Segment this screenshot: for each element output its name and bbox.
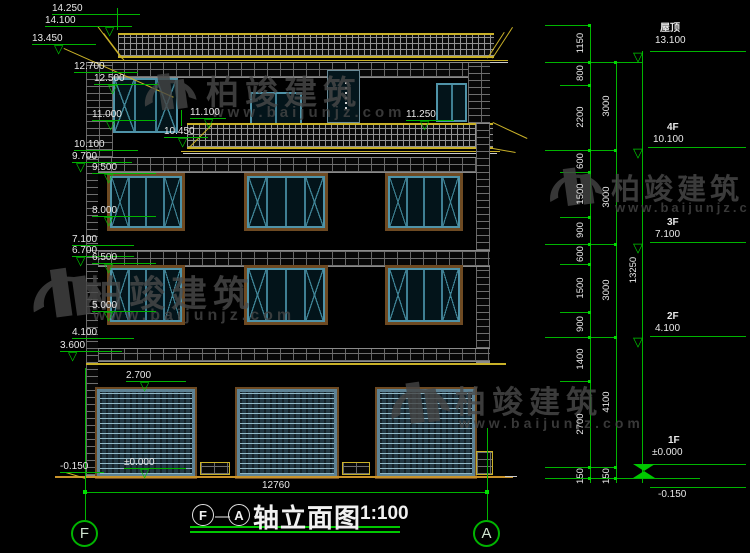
floor-marker-2f: 2F 4.100: [655, 311, 680, 335]
1f-top-brick-band: [98, 348, 490, 362]
2f-window-center: [247, 268, 325, 322]
window-pane: [155, 80, 176, 131]
watermark-url: www.baijunjz.com: [615, 200, 750, 215]
overall-width-dim: 12760: [262, 480, 290, 491]
window-pane: [423, 178, 441, 226]
window-pane: [128, 178, 146, 226]
1f-canopy-line: [86, 363, 506, 365]
2f-window-right: [388, 268, 460, 322]
window-pane: [115, 80, 134, 131]
dim-value: 3000: [601, 175, 613, 219]
floor-level-line: [650, 242, 746, 243]
level-marker: 14.250: [52, 3, 83, 14]
level-marker: 2.700▽: [126, 370, 151, 381]
dim-end-dot: [485, 490, 489, 494]
drawing-scale: 1:100: [360, 503, 409, 525]
window-pane: [390, 270, 406, 320]
ground-line: [55, 476, 513, 478]
below-ground-elev-label: -0.150: [658, 489, 686, 501]
axis-bubble-a: A: [473, 520, 500, 547]
bowtie-marker-bottom: [633, 471, 655, 478]
window-pane: [249, 178, 266, 226]
4f-top-brick-band: [98, 62, 490, 78]
level-marker: 7.100: [72, 234, 97, 245]
low-wall-2: [342, 462, 370, 475]
level-label: 12.700: [74, 61, 105, 72]
window-pane: [266, 178, 285, 226]
waist-roof-tile-band: [187, 123, 493, 149]
floor-marker-1f: 1F ±0.000: [652, 435, 683, 459]
watermark-brand: 柏竣建筑: [611, 166, 743, 208]
floor-elev: ±0.000: [652, 447, 683, 458]
window-pane: [304, 178, 323, 226]
dim-chain-line-total: [642, 51, 643, 483]
garage-door-right: [377, 389, 475, 477]
dim-text: 12760: [262, 480, 290, 491]
window-pane: [406, 178, 424, 226]
window-pane: [390, 178, 406, 226]
drawing-title: 轴立面图: [253, 498, 361, 535]
floor-level-line: [648, 147, 746, 148]
level-marker: 12.700: [74, 61, 105, 72]
dim-value: 2700: [575, 402, 587, 446]
window-pane: [112, 270, 128, 320]
cad-elevation-drawing: 14.250 14.100▽ 13.450▽ 12.700 12.500▽ 11…: [0, 0, 750, 553]
axis-letter: A: [234, 508, 243, 523]
level-label: 4.100: [72, 327, 97, 338]
window-pane: [145, 178, 163, 226]
4f-window-right: [436, 83, 467, 122]
floor-level-line: [646, 464, 746, 465]
4f-door: [327, 70, 360, 123]
level-marker: 14.100▽: [45, 15, 76, 26]
main-roof-fascia-line: [100, 60, 508, 61]
window-pane: [304, 270, 323, 320]
floor-elev: 13.100: [655, 35, 686, 46]
dim-value: 2200: [575, 95, 587, 139]
window-pane: [285, 270, 304, 320]
3f-window-left: [110, 176, 182, 228]
window-pane: [423, 270, 441, 320]
dim-value: 800: [575, 51, 587, 95]
level-marker: 10.100: [74, 139, 105, 150]
ext-line: [545, 62, 642, 63]
window-pane: [275, 94, 300, 123]
level-marker: 9.700▽: [72, 151, 97, 162]
level-label: 14.100: [45, 15, 76, 26]
dim-value: 4100: [601, 380, 613, 424]
overall-dim-line: [85, 492, 487, 493]
3f-top-brick-band: [98, 157, 490, 173]
level-label: 7.100: [72, 234, 97, 245]
right-brick-column: [476, 123, 490, 363]
waist-roof-fascia-line: [181, 151, 500, 152]
level-marker: 8.000▽: [92, 205, 117, 216]
window-pane: [163, 178, 181, 226]
level-marker: 12.500▽: [94, 73, 125, 84]
waist-roof-left-ext-line: [181, 110, 182, 126]
window-pane: [249, 270, 266, 320]
title-axis-end-bubble: A: [228, 504, 250, 526]
window-pane: [441, 178, 459, 226]
4f-right-brick-column: [468, 62, 490, 124]
ext-line: [545, 478, 700, 479]
level-marker: 11.250▽: [406, 109, 436, 120]
level-label: 10.100: [74, 139, 105, 150]
window-pane: [438, 85, 451, 120]
2f-window-left: [110, 268, 182, 322]
floor-name: 3F: [667, 217, 679, 228]
axis-letter: A: [481, 525, 491, 542]
bowtie-marker-top: [633, 464, 655, 471]
2f-top-brick-band: [98, 250, 490, 267]
window-pane: [266, 270, 285, 320]
level-marker: 13.450▽: [32, 33, 63, 44]
window-pane: [406, 270, 424, 320]
window-pane: [451, 85, 466, 120]
floor-elev: 10.100: [653, 134, 684, 145]
floor-elev: 7.100: [655, 229, 680, 240]
level-marker: 6.500▽: [92, 252, 117, 263]
dim-end-dot: [83, 490, 87, 494]
axis-line-f: [85, 368, 86, 520]
door-handle-dots: [345, 79, 347, 110]
dim-value: 1400: [575, 337, 587, 381]
level-marker: 11.000▽: [92, 109, 122, 120]
level-marker: 5.000▽: [92, 300, 117, 311]
window-pane: [128, 270, 146, 320]
floor-name: 屋顶: [660, 23, 680, 34]
3f-window-right: [388, 176, 460, 228]
dim-chain-line-inner: [590, 25, 591, 483]
garage-door-center: [237, 389, 337, 477]
dim-value: 3000: [601, 84, 613, 128]
below-ground-level-line: [650, 487, 746, 488]
axis-letter: F: [199, 508, 207, 523]
floor-name: 4F: [667, 122, 679, 133]
axis-line-a: [487, 428, 488, 520]
floor-marker-3f: 3F 7.100: [655, 217, 680, 241]
4f-window-left: [113, 78, 178, 133]
dim-value: 150: [575, 454, 587, 498]
4f-window-center: [250, 92, 302, 125]
level-marker: 10.450▽: [164, 126, 195, 137]
ext-line: [560, 381, 590, 382]
level-marker: -0.150: [60, 461, 88, 472]
floor-level-line: [650, 51, 746, 52]
window-pane: [163, 270, 181, 320]
3f-window-center: [247, 176, 325, 228]
title-axis-start-bubble: F: [192, 504, 214, 526]
level-marker: 9.500▽: [92, 162, 117, 173]
level-label: -0.150: [60, 461, 88, 472]
floor-name: 1F: [668, 435, 680, 446]
level-marker: ±0.000▽: [124, 457, 155, 468]
waist-roof-right-eave-tip: [493, 122, 528, 139]
floor-marker-roof: 屋顶 13.100: [655, 23, 686, 47]
window-pane: [145, 270, 163, 320]
level-marker: 4.100: [72, 327, 97, 338]
level-label: 14.250: [52, 3, 83, 14]
low-wall-1: [200, 462, 230, 475]
level-marker: 3.600▽: [60, 340, 85, 351]
waist-roof-fascia-edge: [183, 153, 497, 154]
window-pane: [441, 270, 459, 320]
floor-name: 2F: [667, 311, 679, 322]
main-roof-tile-band: [118, 33, 494, 58]
floor-elev: 4.100: [655, 323, 680, 334]
window-pane: [112, 178, 128, 226]
window-pane: [285, 178, 304, 226]
level-marker: 11.100▽: [190, 107, 220, 118]
window-pane: [252, 94, 275, 123]
ground-line-end-dash: [505, 476, 517, 477]
floor-elev: -0.150: [658, 489, 686, 500]
dim-value: 3000: [601, 268, 613, 312]
axis-letter: F: [80, 525, 89, 542]
low-wall-3: [476, 451, 493, 475]
axis-bubble-f: F: [71, 520, 98, 547]
dim-value: 150: [601, 454, 613, 498]
floor-marker-4f: 4F 10.100: [653, 122, 684, 146]
floor-level-line: [650, 336, 746, 337]
watermark-url: www.baijunjz.com: [212, 104, 405, 121]
dim-chain-line-floors: [616, 62, 617, 483]
